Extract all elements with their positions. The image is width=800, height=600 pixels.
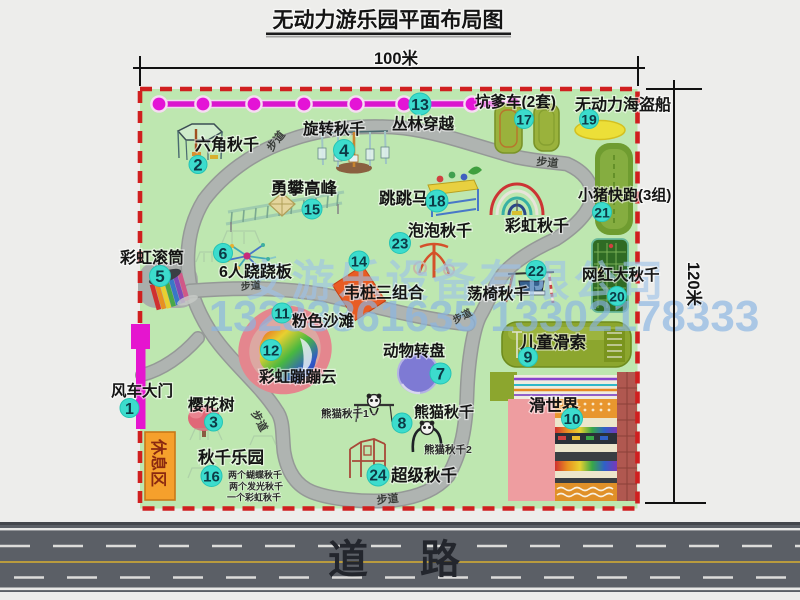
svg-text:超级秋千: 超级秋千 — [391, 465, 457, 485]
svg-text:两个发光秋千: 两个发光秋千 — [229, 481, 283, 492]
svg-text:8: 8 — [398, 416, 407, 433]
svg-text:16: 16 — [203, 469, 220, 486]
svg-text:1: 1 — [125, 401, 134, 418]
svg-text:坑爹车(2套): 坑爹车(2套) — [475, 92, 556, 111]
svg-text:风车大门: 风车大门 — [111, 381, 173, 400]
svg-text:2: 2 — [193, 157, 202, 175]
svg-text:23: 23 — [392, 236, 409, 253]
svg-text:17: 17 — [516, 112, 532, 128]
svg-text:无动力游乐园平面布局图: 无动力游乐园平面布局图 — [273, 8, 504, 32]
svg-text:15: 15 — [304, 203, 320, 219]
svg-text:11: 11 — [274, 307, 289, 323]
svg-text:14: 14 — [351, 255, 367, 271]
svg-text:熊猫秋千1 -: 熊猫秋千1 - — [321, 407, 376, 420]
svg-text:泡泡秋千: 泡泡秋千 — [408, 221, 472, 240]
svg-text:7: 7 — [436, 366, 445, 384]
svg-text:动物转盘: 动物转盘 — [383, 341, 446, 360]
svg-text:21: 21 — [594, 205, 610, 221]
svg-text:荡椅秋千: 荡椅秋千 — [467, 284, 530, 303]
svg-text:两个蝴蝶秋千: 两个蝴蝶秋千 — [228, 469, 282, 480]
svg-text:熊猫秋千: 熊猫秋千 — [414, 403, 474, 421]
svg-text:彩虹秋千: 彩虹秋千 — [504, 216, 569, 235]
svg-text:120米: 120米 — [684, 262, 704, 307]
svg-text:20: 20 — [609, 289, 625, 305]
svg-text:休息区: 休息区 — [149, 438, 168, 487]
svg-text:一个彩虹秋千: 一个彩虹秋千 — [227, 492, 281, 503]
svg-text:22: 22 — [528, 264, 544, 280]
svg-text:道路: 道路 — [328, 538, 512, 582]
svg-text:24: 24 — [369, 468, 387, 485]
svg-text:彩虹蹦蹦云: 彩虹蹦蹦云 — [258, 367, 337, 386]
svg-text:秋千乐园: 秋千乐园 — [198, 447, 264, 467]
svg-text:9: 9 — [524, 350, 533, 367]
svg-text:彩虹滚筒: 彩虹滚筒 — [119, 248, 184, 267]
svg-text:3: 3 — [209, 415, 218, 432]
svg-text:4: 4 — [339, 141, 349, 161]
svg-text:12: 12 — [263, 343, 280, 360]
svg-text:勇攀高峰: 勇攀高峰 — [271, 178, 338, 198]
svg-text:跳跳马: 跳跳马 — [379, 188, 429, 208]
svg-text:六角秋千: 六角秋千 — [195, 135, 259, 154]
svg-text:丛林穿越: 丛林穿越 — [392, 114, 455, 133]
svg-text:小猪快跑(3组): 小猪快跑(3组) — [578, 186, 671, 204]
svg-text:韦桩三组合: 韦桩三组合 — [344, 283, 425, 302]
svg-text:18: 18 — [428, 194, 446, 211]
svg-text:13: 13 — [411, 97, 429, 114]
svg-text:10: 10 — [564, 411, 581, 428]
svg-text:6: 6 — [219, 246, 228, 263]
svg-text:网红大秋千: 网红大秋千 — [582, 265, 660, 284]
svg-text:熊猫秋千2: 熊猫秋千2 — [424, 443, 472, 456]
svg-text:旋转秋千: 旋转秋千 — [302, 119, 366, 138]
svg-text:19: 19 — [581, 112, 597, 128]
svg-text:5: 5 — [155, 267, 164, 286]
svg-text:粉色沙滩: 粉色沙滩 — [292, 311, 355, 330]
svg-text:樱花树: 樱花树 — [188, 395, 235, 414]
svg-text:6人跷跷板: 6人跷跷板 — [219, 262, 293, 281]
svg-text:100米: 100米 — [374, 48, 419, 68]
